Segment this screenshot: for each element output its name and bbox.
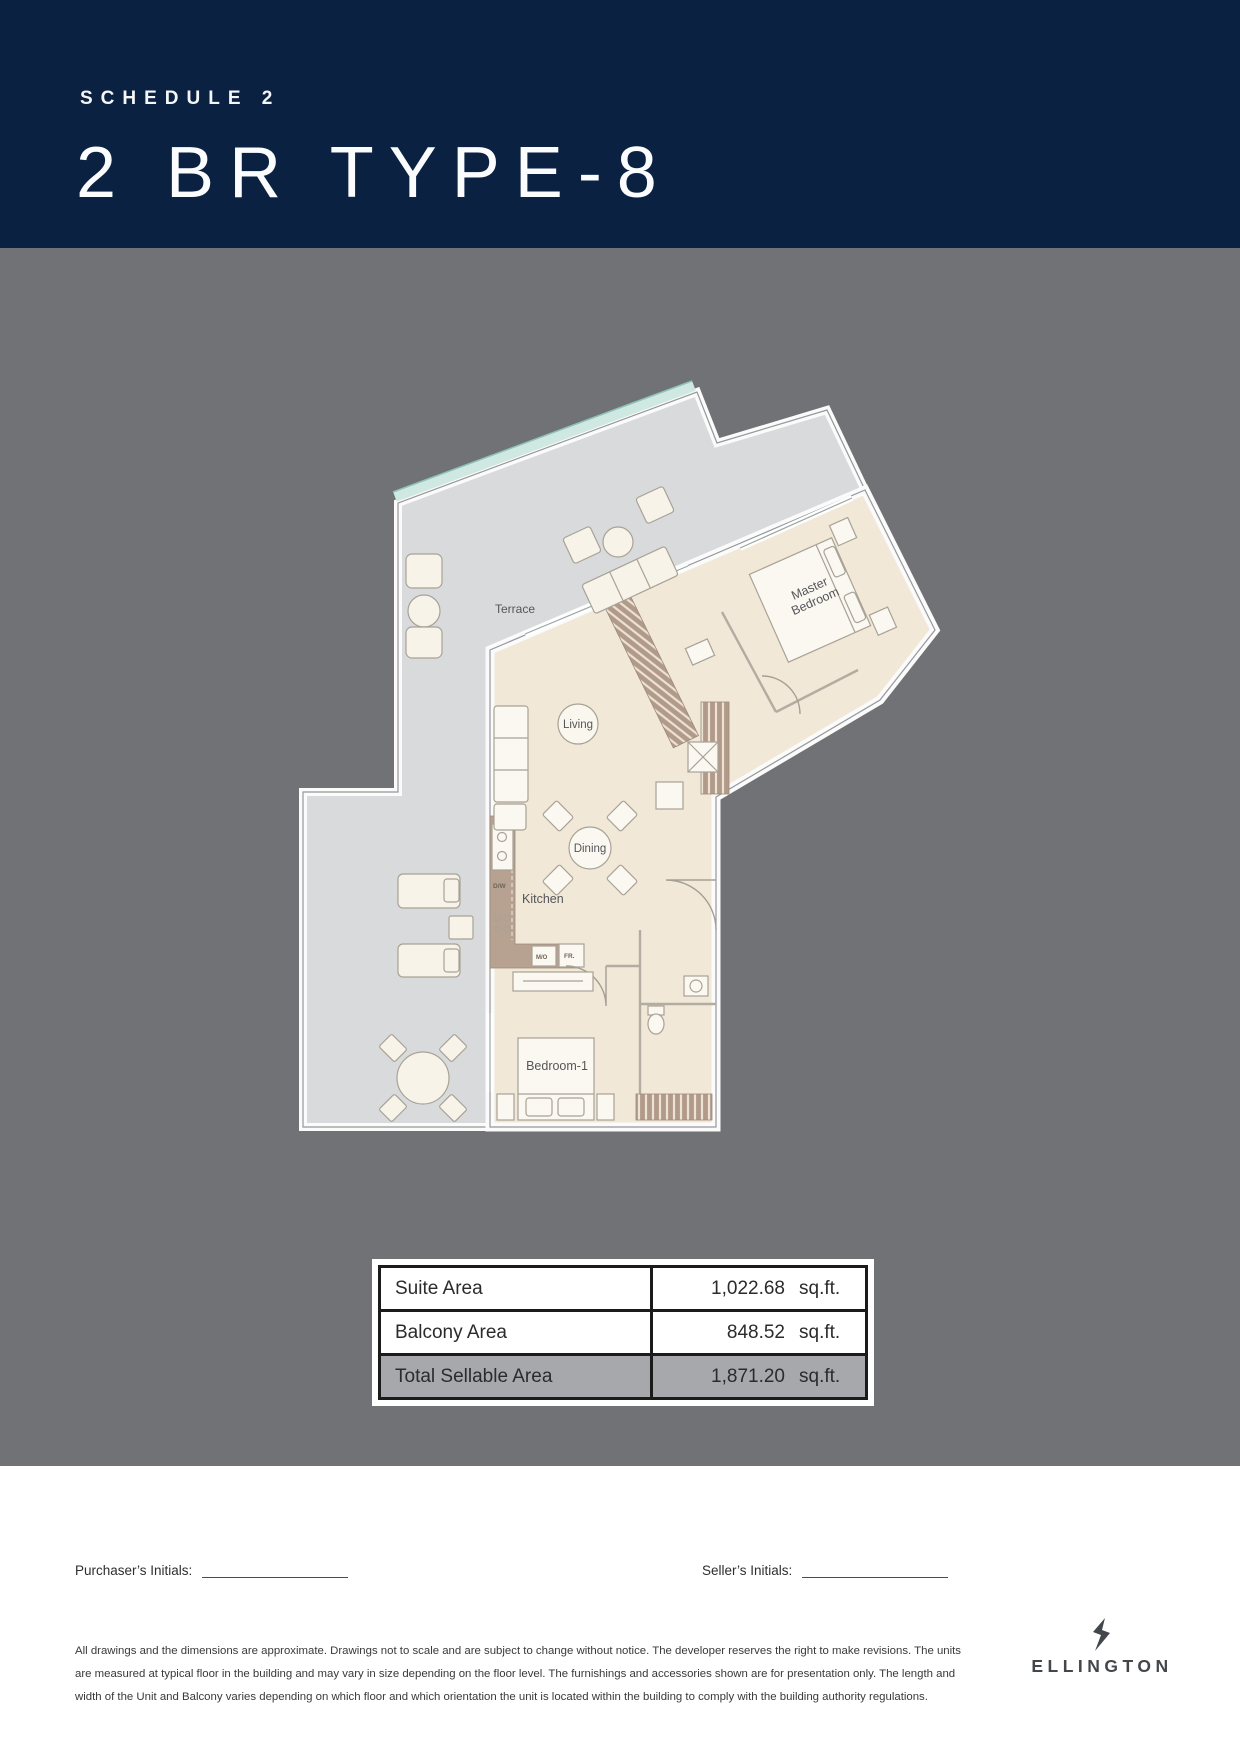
outdoor-chair-icon — [406, 554, 442, 588]
living-label: Living — [563, 719, 593, 731]
outdoor-table-icon — [408, 595, 440, 627]
balcony-area-value: 848.52 sq.ft. — [653, 1312, 865, 1353]
disclaimer-line: are measured at typical floor in the bui… — [75, 1663, 975, 1686]
table-icon — [656, 782, 683, 809]
shaft-icon — [688, 742, 718, 772]
terrace-label: Terrace — [495, 602, 535, 616]
purchaser-initials-field[interactable] — [202, 1562, 348, 1578]
document-page: SCHEDULE 2 2 BR TYPE-8 — [0, 0, 1240, 1754]
disclaimer-line: All drawings and the dimensions are appr… — [75, 1640, 975, 1663]
stove-icon — [492, 824, 513, 870]
pillow-icon — [558, 1098, 584, 1116]
table-row-balcony: Balcony Area 848.52 sq.ft. — [381, 1312, 865, 1356]
disclaimer: All drawings and the dimensions are appr… — [75, 1640, 975, 1709]
toilet-icon — [648, 1006, 664, 1034]
coffee-table-icon — [603, 527, 633, 557]
seller-initials-field[interactable] — [802, 1562, 948, 1578]
balcony-area-label: Balcony Area — [381, 1312, 653, 1353]
suite-area-label: Suite Area — [381, 1268, 653, 1309]
plan-canvas: D/W M/O FR. — [0, 248, 1240, 1466]
kitchen-label: Kitchen — [522, 892, 564, 906]
purchaser-initials: Purchaser’s Initials: — [75, 1562, 348, 1578]
fridge-label: FR. — [564, 953, 575, 960]
ellington-wordmark: ELLINGTON — [1007, 1656, 1197, 1677]
total-area-value: 1,871.20 sq.ft. — [653, 1356, 865, 1397]
round-table-icon — [397, 1052, 449, 1104]
signature-row: Purchaser’s Initials: Seller’s Initials: — [0, 1562, 1240, 1596]
suite-area-value: 1,022.68 sq.ft. — [653, 1268, 865, 1309]
table-row-total: Total Sellable Area 1,871.20 sq.ft. — [381, 1356, 865, 1397]
pillow-icon — [526, 1098, 552, 1116]
washer-icon — [684, 976, 708, 996]
ellington-mark-icon — [1092, 1618, 1112, 1652]
page-title: 2 BR TYPE-8 — [76, 132, 672, 214]
ellington-logo: ELLINGTON — [1007, 1618, 1197, 1677]
seller-initials: Seller’s Initials: — [702, 1562, 948, 1578]
bedroom1-label: Bedroom-1 — [526, 1059, 588, 1073]
header-band: SCHEDULE 2 2 BR TYPE-8 — [0, 0, 1240, 248]
dishwasher-label: D/W — [493, 883, 507, 890]
living-label-badge: Living — [558, 704, 598, 744]
sofa-icon — [494, 706, 528, 802]
microwave-label: M/O — [536, 955, 548, 961]
table-row-suite: Suite Area 1,022.68 sq.ft. — [381, 1268, 865, 1312]
disclaimer-line: width of the Unit and Balcony varies dep… — [75, 1686, 975, 1709]
outdoor-chair-icon — [406, 627, 442, 658]
seller-initials-label: Seller’s Initials: — [702, 1563, 792, 1578]
schedule-label: SCHEDULE 2 — [80, 88, 280, 110]
side-table-icon — [449, 916, 473, 939]
total-area-label: Total Sellable Area — [381, 1356, 653, 1397]
nightstand-icon — [497, 1094, 514, 1120]
purchaser-initials-label: Purchaser’s Initials: — [75, 1563, 192, 1578]
dining-label: Dining — [574, 843, 607, 855]
nightstand-icon — [597, 1094, 614, 1120]
area-table: Suite Area 1,022.68 sq.ft. Balcony Area … — [372, 1259, 874, 1406]
